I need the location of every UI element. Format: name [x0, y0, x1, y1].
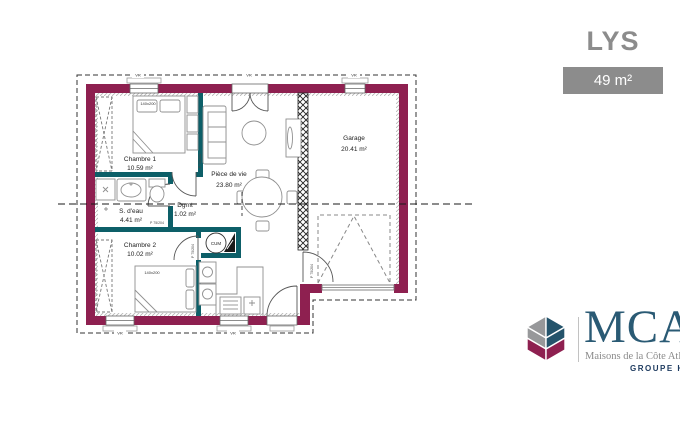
water-heater-closet: CUM: [206, 233, 235, 253]
door-label: P 75/204: [198, 154, 202, 168]
entry-door: [267, 286, 297, 316]
tv-unit: [286, 119, 301, 157]
room-area-chambre2: 10.02 m²: [127, 251, 153, 258]
room-area-degagement: 1.02 m²: [174, 211, 197, 218]
window-marker-label: VR: [230, 331, 236, 336]
room-area-sdeau: 4.41 m²: [120, 217, 143, 224]
room-area-garage: 20.41 m²: [341, 146, 367, 153]
fridge: [199, 284, 216, 305]
entry-step: [270, 326, 294, 331]
dishwasher: [220, 297, 241, 314]
wardrobe-chambre2: [96, 240, 112, 312]
room-area-piece-de-vie: 23.80 m²: [216, 182, 242, 189]
water-heater-label: CUM: [211, 241, 221, 246]
shelf-chambre1: [187, 96, 198, 150]
room-label-sdeau: S. d'eau: [119, 208, 143, 215]
room-label-chambre2: Chambre 2: [124, 242, 157, 249]
dining-table: [237, 170, 297, 231]
shower: [96, 179, 115, 200]
room-label-chambre1: Chambre 1: [124, 156, 157, 163]
wardrobe-chambre1: [96, 97, 112, 171]
bed-size-label: 140x200: [144, 270, 160, 275]
logo-divider: [578, 317, 579, 362]
room-label-degagement: Dgmt: [177, 202, 193, 209]
door-label: P 75/204: [191, 244, 195, 258]
room-area-chambre1: 10.59 m²: [127, 165, 153, 172]
door-label: P 75/204: [150, 221, 164, 225]
logo-group-name: GROUPE Hexa: [630, 364, 680, 373]
plan-title: LYS: [563, 26, 663, 57]
garage-separation-wall: [298, 93, 308, 250]
hob-unit: [199, 262, 216, 283]
window-marker-label: VR: [117, 331, 123, 336]
entry-door-opening: [267, 316, 297, 325]
floor-drain: [104, 207, 108, 211]
bed-size-label: 140x200: [140, 101, 156, 106]
door-label: P 75/204: [310, 264, 314, 278]
furniture-living: [203, 106, 301, 231]
toilet: [149, 179, 165, 202]
window-marker-label: VR: [351, 73, 357, 78]
coffee-table: [242, 121, 266, 145]
area-badge: 49 m²: [563, 67, 663, 94]
garage-door: [318, 215, 394, 290]
window-sill: [127, 78, 161, 83]
window-marker-label: VR: [246, 73, 252, 78]
door-chambre1: [172, 172, 196, 196]
window-sill: [342, 78, 368, 83]
sofa: [203, 106, 226, 164]
mca-logo-icon: [519, 311, 573, 367]
page: P 75/204 P 75/204 P 75/204 P 75/204 1: [0, 0, 680, 425]
french-door-opening: [232, 84, 268, 93]
room-label-piece-de-vie: Pièce de vie: [211, 171, 247, 178]
kitchen: [199, 262, 263, 316]
logo-subtitle: Maisons de la Côte Atlanti: [585, 351, 680, 362]
window-marker-label: VR: [135, 73, 141, 78]
logo-acronym: MCA: [584, 300, 680, 354]
room-label-garage: Garage: [343, 135, 365, 142]
washbasin: [117, 179, 146, 201]
sink-unit: [244, 297, 260, 314]
